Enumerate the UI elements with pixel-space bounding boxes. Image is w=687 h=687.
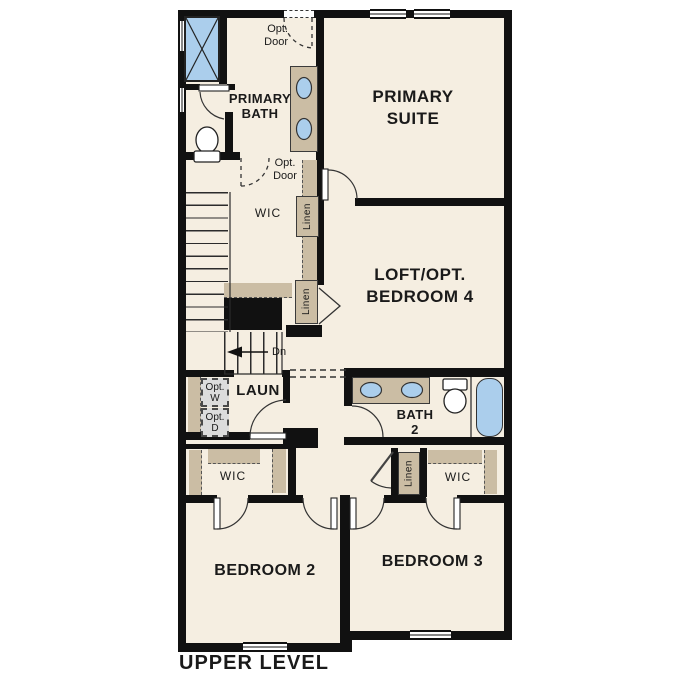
optional-door-opening xyxy=(284,10,314,18)
wall xyxy=(227,84,235,90)
staircase-upper-run xyxy=(186,192,228,332)
wall xyxy=(186,84,200,90)
label-line: Door xyxy=(262,170,308,183)
label-line: LOFT/OPT. xyxy=(335,264,505,286)
wall xyxy=(451,631,512,640)
wall xyxy=(178,643,243,652)
label-line: Opt. xyxy=(238,23,288,36)
label-line: BEDROOM 4 xyxy=(335,286,505,308)
label-line: BATH xyxy=(375,407,455,422)
label-line: 2 xyxy=(375,422,455,437)
wall xyxy=(343,631,410,640)
closet-shelf xyxy=(189,450,202,495)
linen-label: Linen xyxy=(404,460,415,487)
plan-title: UPPER LEVEL xyxy=(179,652,399,675)
room-label-wic-primary: WIC xyxy=(240,207,296,220)
wall xyxy=(344,437,352,445)
opt-washer-line1: Opt. xyxy=(206,382,225,393)
wall xyxy=(348,368,512,377)
closet-shelf xyxy=(272,449,286,493)
label-line: PRIMARY xyxy=(330,86,496,108)
optional-washer: Opt. W xyxy=(201,378,229,407)
linen-closet: Linen xyxy=(398,452,420,495)
opt-washer-line2: W xyxy=(206,393,225,404)
linen-closet: Linen xyxy=(295,280,318,324)
room-label-bedroom3: BEDROOM 3 xyxy=(355,553,510,571)
optional-dryer: Opt. D xyxy=(201,408,229,437)
optional-door-note: Opt. Door xyxy=(238,23,288,49)
label-line: BATH xyxy=(204,106,316,121)
wall xyxy=(219,16,227,84)
linen-closet: Linen xyxy=(296,196,319,237)
shower xyxy=(184,16,220,82)
window xyxy=(414,9,450,19)
wall xyxy=(178,152,240,160)
wall xyxy=(457,495,512,503)
label-line: Opt. xyxy=(262,157,308,170)
room-label-loft: LOFT/OPT. BEDROOM 4 xyxy=(335,264,505,308)
wall xyxy=(391,448,398,497)
laundry-counter xyxy=(188,377,201,432)
window xyxy=(178,88,186,112)
room-label-wic-bedroom2: WIC xyxy=(205,470,261,483)
opt-dryer-line2: D xyxy=(206,423,225,434)
stair-down-label: Dn xyxy=(272,346,302,358)
room-label-primary-bath: PRIMARY BATH xyxy=(204,91,316,121)
linen-label: Linen xyxy=(301,289,312,316)
bath2-vanity xyxy=(352,377,430,404)
wall xyxy=(406,10,414,18)
label-line: SUITE xyxy=(330,108,496,130)
wall xyxy=(248,495,303,503)
floor-plan: Linen Linen Linen Opt. W Opt. D xyxy=(0,0,687,687)
wall xyxy=(178,495,217,503)
wall xyxy=(504,10,512,640)
optional-door-note: Opt. Door xyxy=(262,157,308,183)
label-line: PRIMARY xyxy=(204,91,316,106)
window xyxy=(370,9,406,19)
closet-shelf xyxy=(224,283,292,298)
closet-shelf xyxy=(428,450,482,464)
wall xyxy=(344,368,352,406)
wall xyxy=(420,448,427,497)
wall xyxy=(352,437,512,445)
linen-label: Linen xyxy=(302,203,313,230)
room-label-laundry: LAUN xyxy=(230,382,286,399)
label-line: Door xyxy=(238,36,288,49)
opt-dryer-line1: Opt. xyxy=(206,412,225,423)
wall xyxy=(355,198,512,206)
window xyxy=(410,630,451,640)
bathtub xyxy=(476,378,503,437)
wall xyxy=(282,370,290,377)
wall xyxy=(286,325,322,337)
window xyxy=(243,642,287,652)
wall xyxy=(340,495,350,645)
room-label-primary-suite: PRIMARY SUITE xyxy=(330,86,496,130)
wall xyxy=(450,10,512,18)
closet-shelf xyxy=(208,449,260,464)
room-label-bath2: BATH 2 xyxy=(375,407,455,437)
room-label-wic-bedroom3: WIC xyxy=(430,471,486,484)
room-label-bedroom2: BEDROOM 2 xyxy=(190,562,340,580)
wall xyxy=(224,298,282,330)
